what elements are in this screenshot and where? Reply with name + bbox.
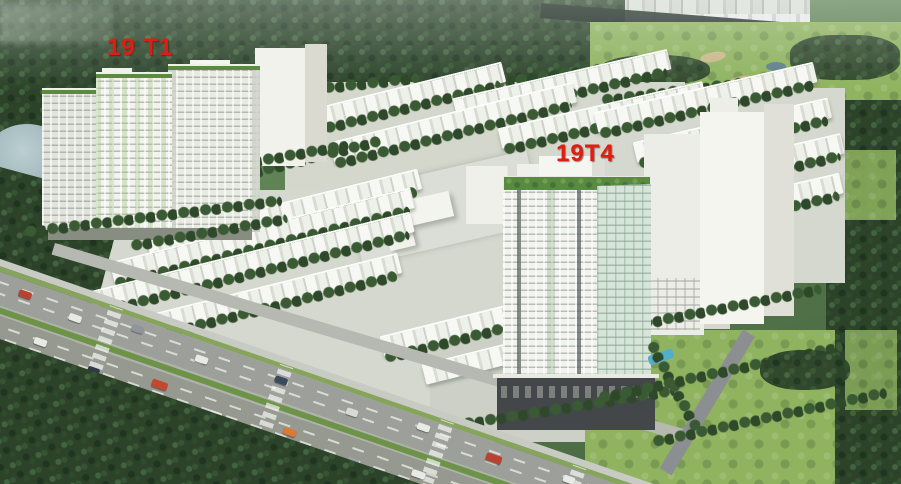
lawn	[838, 150, 896, 220]
tower-19t1-wing-left	[42, 94, 100, 230]
aerial-development-rendering: 19 T1 19T4	[0, 0, 901, 484]
facade-accent-columns	[503, 190, 597, 382]
tower-19t4-front-facade	[503, 190, 597, 382]
label-19t1: 19 T1	[107, 34, 173, 62]
label-19t4-text: 19T4	[556, 140, 615, 167]
massing-tower-front	[700, 112, 764, 324]
tree-clump	[760, 350, 850, 390]
rooftop-box	[102, 68, 132, 78]
rooftop-box	[710, 98, 738, 112]
massing-tower-side	[764, 104, 794, 316]
tower-19t4-glass-facade	[597, 184, 651, 386]
label-19t1-text: 19 T1	[107, 34, 173, 61]
label-19t4: 19T4	[556, 140, 615, 168]
